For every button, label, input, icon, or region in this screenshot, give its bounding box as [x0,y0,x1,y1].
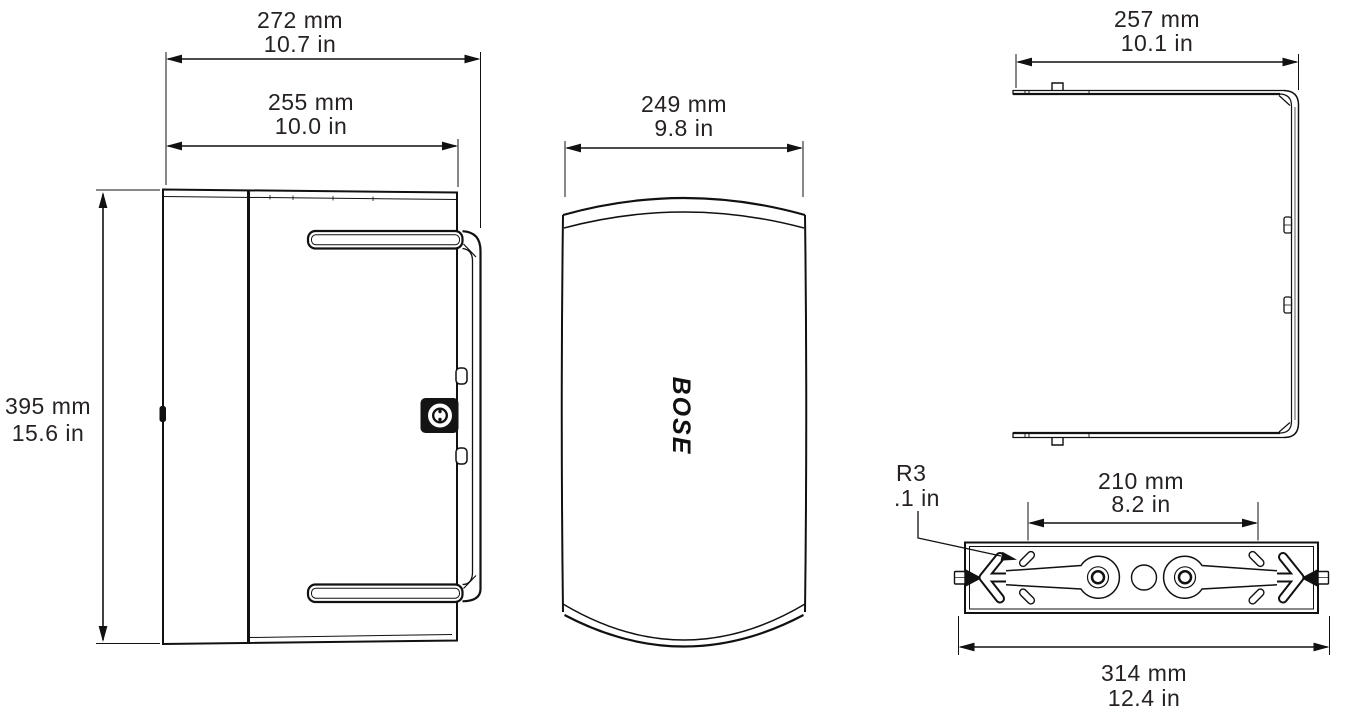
arrowhead-left [166,55,182,64]
bracket-bottom-arm [1013,433,1284,446]
bracket-top-arm [1013,83,1284,95]
dim-bracket-width [1016,54,1299,90]
dim-body-width [166,139,458,187]
label-front-width-imperial: 9.8 in [654,115,713,141]
label-mount-spacing-imperial: 8.2 in [1111,491,1170,517]
label-body-width-metric: 255 mm [268,89,354,115]
dim-front-width [565,141,803,197]
label-overall-width-imperial: 10.7 in [264,31,337,57]
arrowhead-right [1283,58,1299,67]
label-front-width-metric: 249 mm [641,91,727,117]
dim-bracket-length [959,616,1330,655]
label-slot-radius-metric: R3 [896,460,926,486]
arrowhead-left [959,643,975,652]
label-overall-width-metric: 272 mm [257,7,343,33]
front-view: BOSE [562,141,807,648]
side-latch-tab [160,406,167,422]
label-body-width-imperial: 10.0 in [275,113,348,139]
label-slot-radius-imperial: .1 in [894,485,940,511]
dim-height [96,190,160,644]
arrowhead-right [442,142,458,151]
label-bracket-length-metric: 314 mm [1101,660,1187,686]
bracket-top-view [918,502,1330,655]
arrowhead-right [465,55,481,64]
label-bracket-width-imperial: 10.1 in [1121,30,1194,56]
rear-clip-tab-top [456,368,467,384]
arrowhead-right [1314,643,1330,652]
arrowhead-left [565,144,581,153]
keeper-tab [1052,438,1063,445]
side-view [96,52,481,644]
arrowhead-left [1028,519,1044,528]
arrowhead-up [99,192,108,208]
arrowhead-right [1242,519,1258,528]
label-bracket-width-metric: 257 mm [1114,6,1200,32]
mount-knob [421,398,459,433]
keeper-tab [1052,83,1063,90]
arrowhead-left [166,142,182,151]
arrowhead-left [1016,58,1032,67]
bracket-rear-view [1013,54,1299,445]
label-bracket-length-imperial: 12.4 in [1108,685,1181,711]
label-height-metric: 395 mm [5,393,91,419]
arrowhead-right [787,144,803,153]
dimension-drawing: BOSE [0,0,1352,720]
rear-clip-tab-bottom [456,448,467,464]
label-height-imperial: 15.6 in [12,420,85,446]
arrowhead-down [99,626,108,642]
bracket-back-plate [1279,91,1299,438]
bose-logo: BOSE [667,377,695,456]
